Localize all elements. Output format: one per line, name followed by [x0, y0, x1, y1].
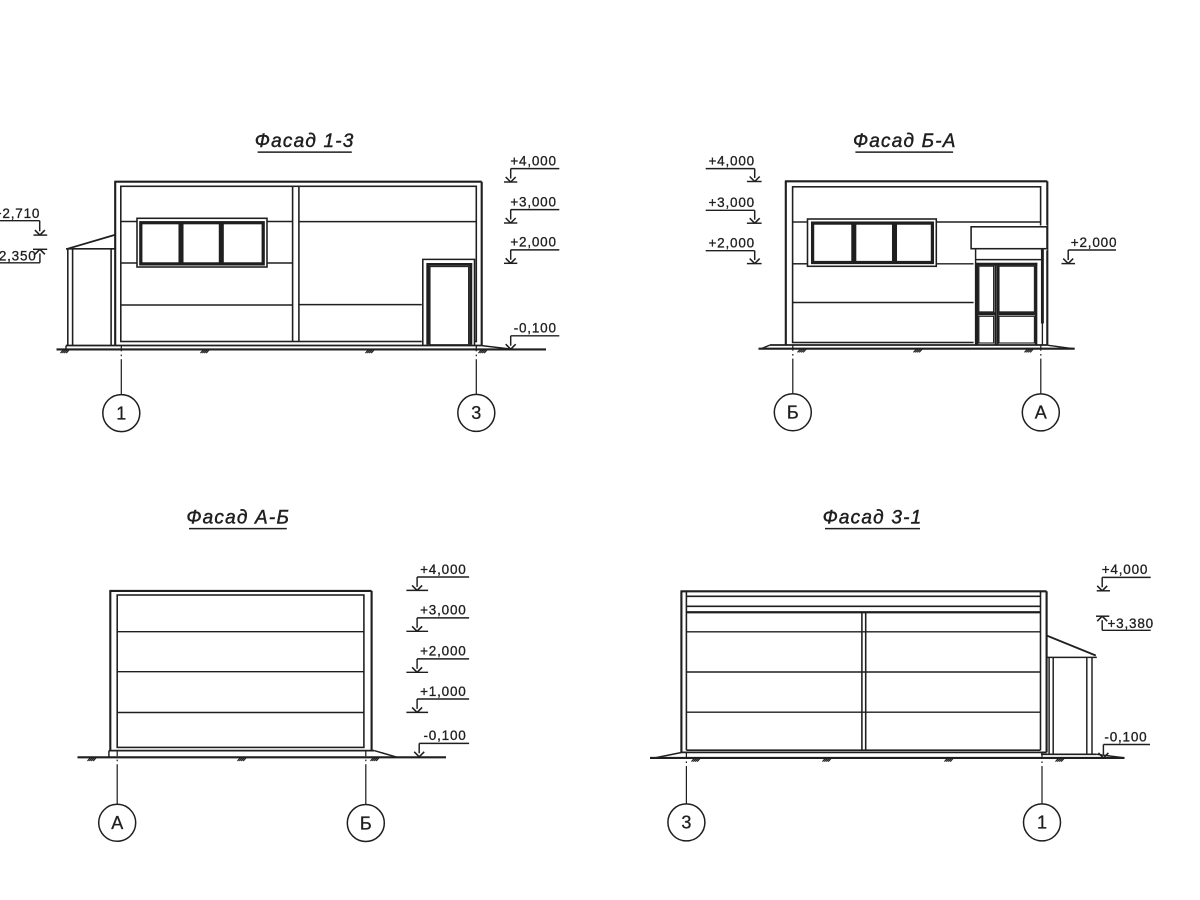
svg-text:+3,000: +3,000: [420, 603, 466, 618]
svg-text:+4,000: +4,000: [420, 562, 466, 577]
svg-text:+4,000: +4,000: [510, 153, 556, 168]
svg-text:+2,000: +2,000: [709, 236, 755, 251]
svg-text:+4,000: +4,000: [709, 153, 755, 168]
svg-text:-0,100: -0,100: [424, 728, 467, 743]
svg-text:Б: Б: [787, 403, 799, 423]
svg-text:+2,710: +2,710: [0, 206, 40, 221]
svg-text:+3,000: +3,000: [709, 195, 755, 210]
svg-text:Фасад 3-1: Фасад 3-1: [823, 508, 923, 529]
svg-text:3: 3: [681, 813, 691, 833]
svg-text:2,350: 2,350: [0, 249, 37, 264]
svg-text:1: 1: [116, 403, 126, 423]
svg-text:1: 1: [1037, 813, 1047, 833]
svg-text:+4,000: +4,000: [1102, 562, 1148, 577]
svg-text:+3,380: +3,380: [1108, 616, 1154, 631]
svg-text:+1,000: +1,000: [420, 684, 466, 699]
svg-text:А: А: [1035, 403, 1047, 423]
svg-text:-0,100: -0,100: [514, 321, 557, 336]
svg-text:-0,100: -0,100: [1104, 729, 1147, 744]
svg-text:3: 3: [471, 403, 481, 423]
svg-text:Б: Б: [360, 813, 372, 833]
svg-text:А: А: [111, 813, 123, 833]
svg-text:+3,000: +3,000: [510, 194, 556, 209]
svg-text:Фасад 1-3: Фасад 1-3: [255, 131, 355, 152]
svg-text:+2,000: +2,000: [1071, 235, 1117, 250]
svg-text:+2,000: +2,000: [420, 644, 466, 659]
svg-text:Фасад А-Б: Фасад А-Б: [186, 508, 290, 529]
svg-text:+2,000: +2,000: [510, 235, 556, 250]
svg-text:Фасад Б-А: Фасад Б-А: [853, 131, 957, 152]
